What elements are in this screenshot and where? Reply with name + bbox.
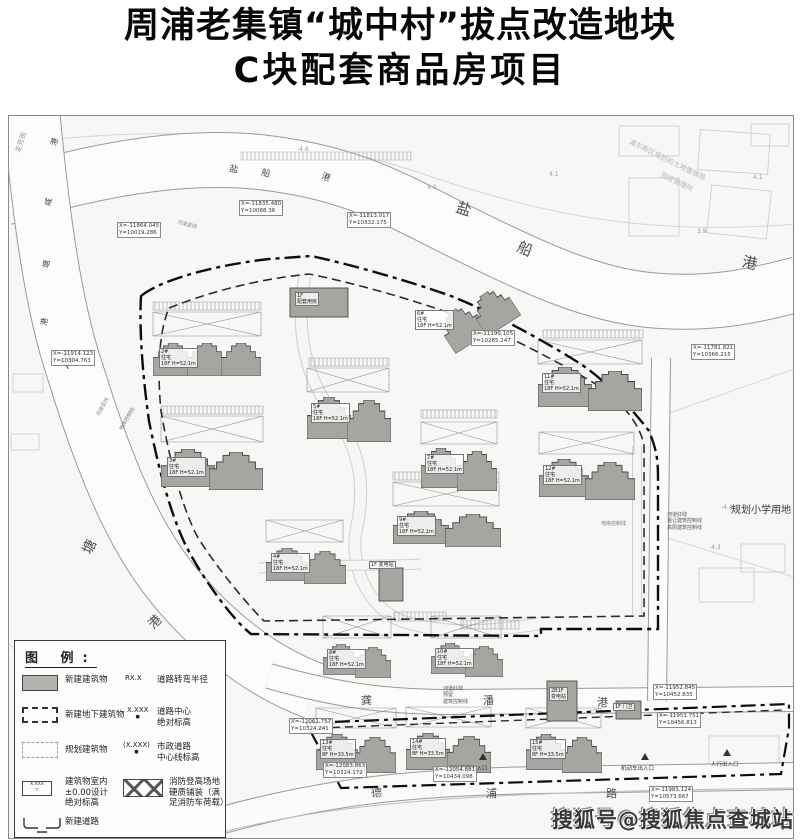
annotation-label: 规划小学用地 [731, 505, 791, 518]
legend-label: 规划建筑物 [65, 745, 108, 756]
annotation-label: -4.1 [751, 174, 763, 182]
coordinate-label: X=-11952.845 Y=10452.835 [653, 684, 697, 700]
legend-label: 道路转弯半径 [157, 675, 208, 686]
map-character: 德 [371, 787, 382, 798]
annotation-label: 河道蓝线 [177, 220, 198, 231]
annotation-label: -4.4 [721, 504, 733, 512]
radius-symbol: RX.X [125, 675, 142, 683]
building-label: 4# 住宅 18F H=52.1m [271, 553, 310, 573]
dot-icon: ● [127, 715, 148, 721]
map-character: 塘 [42, 259, 51, 268]
map-character: 港 [597, 697, 608, 708]
map-character: 港 [146, 613, 164, 631]
coordinate-label: X=-12083.863 Y=10324.172 [323, 762, 367, 778]
title-block: 周浦老集镇“城中村”拔点改造地块 C块配套商品房项目 [0, 4, 800, 93]
building-label: 14# 住宅 8F H=33.5m [410, 738, 446, 758]
underground-building-swatch [22, 707, 58, 723]
legend-label: 新建建筑物 [65, 675, 108, 686]
map-character: 船 [515, 240, 535, 260]
annotation-label: 地库控制线 [119, 407, 137, 432]
map-character: 潘 [483, 695, 494, 706]
map-character: 浦 [486, 788, 497, 799]
annotation-label: 河道红线 预留 建筑控制线 [443, 686, 468, 705]
building-label: 1F 门卫 [613, 703, 635, 711]
building-label: 6# 住宅 18F H=52.1m [415, 310, 454, 330]
coordinate-label: X=-12054.881 Y=10434.098 [433, 766, 477, 782]
title-line-1: 周浦老集镇“城中村”拔点改造地块 [0, 4, 800, 50]
annotation-label: 走芳街 [14, 131, 29, 154]
coordinate-label: X=-11781.821 Y=10366.215 [691, 344, 735, 360]
building-label: 2B1F 变电站 [549, 687, 568, 701]
planned-building-swatch [22, 742, 58, 758]
map-character: 港 [320, 173, 331, 184]
legend: 图 例: 新建建筑物 RX.X 道路转弯半径 新建地下建筑物 X.XXX ● 道… [14, 640, 226, 838]
legend-title: 图 例: [25, 647, 97, 668]
building-label: 1F 配套用房 [295, 292, 319, 306]
legend-label: 新建道路 [65, 817, 99, 828]
annotation-label: 4.0 [427, 184, 437, 192]
legend-label: 市政道路 中心线标高 [157, 742, 200, 763]
map-character: 港 [50, 137, 60, 147]
site-plan: 盐船港盐船港港咸塘港咸塘港龚潘港德浦路 规划小学用地浦东新区规划和土地管理局测绘… [8, 115, 794, 839]
map-character: 塘 [81, 538, 100, 557]
road-elevation-symbol: X.XXX ● [127, 707, 148, 720]
annotation-label: 河道蓝线 [96, 397, 111, 418]
building-label: 9# 住宅 18F H=52.1m [397, 516, 436, 536]
annotation-label: 地库控制线 [601, 521, 626, 527]
title-line-2: C块配套商品房项目 [0, 50, 800, 94]
building-label: 12# 住宅 18F H=52.1m [543, 465, 582, 485]
coordinate-label: X=-11951.751 Y=10456.813 [657, 712, 701, 728]
annotation-label: 人行出入口 [711, 762, 739, 769]
map-character: 路 [606, 788, 617, 799]
annotation-label: -4.6 [297, 146, 309, 154]
coordinate-label: X=-11190.105 Y=10285.247 [471, 330, 515, 346]
annotation-label: 4.1 [549, 171, 559, 179]
watermark: 搜狐号@搜狐焦点查城站 [552, 804, 794, 834]
fire-paving-swatch [123, 779, 163, 797]
building-label: 10# 住宅 18F H=52.1m [435, 648, 474, 668]
annotation-label: 河道红线 退让建筑控制线 高层建筑控制线 [667, 512, 702, 531]
map-character: 船 [260, 169, 271, 180]
annotation-label: -4.3 [709, 544, 721, 552]
elevation-symbol-text: X.XXX [30, 782, 44, 787]
building-label: 8# 住宅 18F H=52.1m [327, 649, 366, 669]
annotation-label: 3.9 [697, 228, 707, 236]
coordinate-label: X=-11813.017 Y=10332.175 [347, 212, 391, 228]
map-character: 咸 [44, 197, 54, 207]
building-label: 11# 住宅 18F H=52.1m [542, 373, 581, 393]
indoor-elevation-swatch: X.XXX▽ [22, 781, 52, 796]
building-label: 3# 住宅 18F H=52.1m [167, 457, 206, 477]
coordinate-label: X=-12061.757 Y=10324.241 [289, 718, 333, 734]
map-character: 港 [40, 317, 49, 326]
map-character: 龚 [361, 695, 372, 706]
municipal-elevation-symbol: (X.XXX) ● [123, 742, 150, 755]
legend-label: 新建地下建筑物 [65, 710, 125, 721]
legend-label: 建筑物室内 ±0.00设计 绝对标高 [65, 777, 108, 809]
map-character: 盐 [454, 200, 473, 219]
building-label: 2# 住宅 18F H=52.1m [159, 348, 198, 368]
new-road-symbol [22, 817, 62, 833]
legend-label: 消防登高场地 硬质铺装（满 足消防车荷载） [169, 777, 225, 809]
building-label: 7# 住宅 18F H=52.1m [425, 454, 464, 474]
building-label: 15# 住宅 8F H=33.5m [530, 739, 566, 759]
coordinate-label: X=-11983.124 Y=10573.667 [649, 786, 693, 802]
coordinate-label: X=-11835.480 Y=10088.36 [239, 200, 283, 216]
coordinate-label: X=-11914.123 Y=10304.763 [51, 350, 95, 366]
legend-label: 道路中心 绝对标高 [157, 707, 191, 728]
page: 周浦老集镇“城中村”拔点改造地块 C块配套商品房项目 [0, 0, 800, 840]
map-character: 港 [741, 255, 759, 273]
building-label: 5# 住宅 18F H=52.1m [311, 403, 350, 423]
coordinate-label: X=-11864.045 Y=10019.286 [117, 222, 161, 238]
annotation-label: 机动车出入口 [621, 766, 654, 773]
map-character: 盐 [228, 165, 238, 175]
new-building-swatch [22, 675, 58, 691]
building-label: 1F 变电站 [369, 561, 396, 569]
building-label: 13# 住宅 8F H=33.5m [320, 739, 356, 759]
dot-icon: ● [123, 750, 150, 756]
